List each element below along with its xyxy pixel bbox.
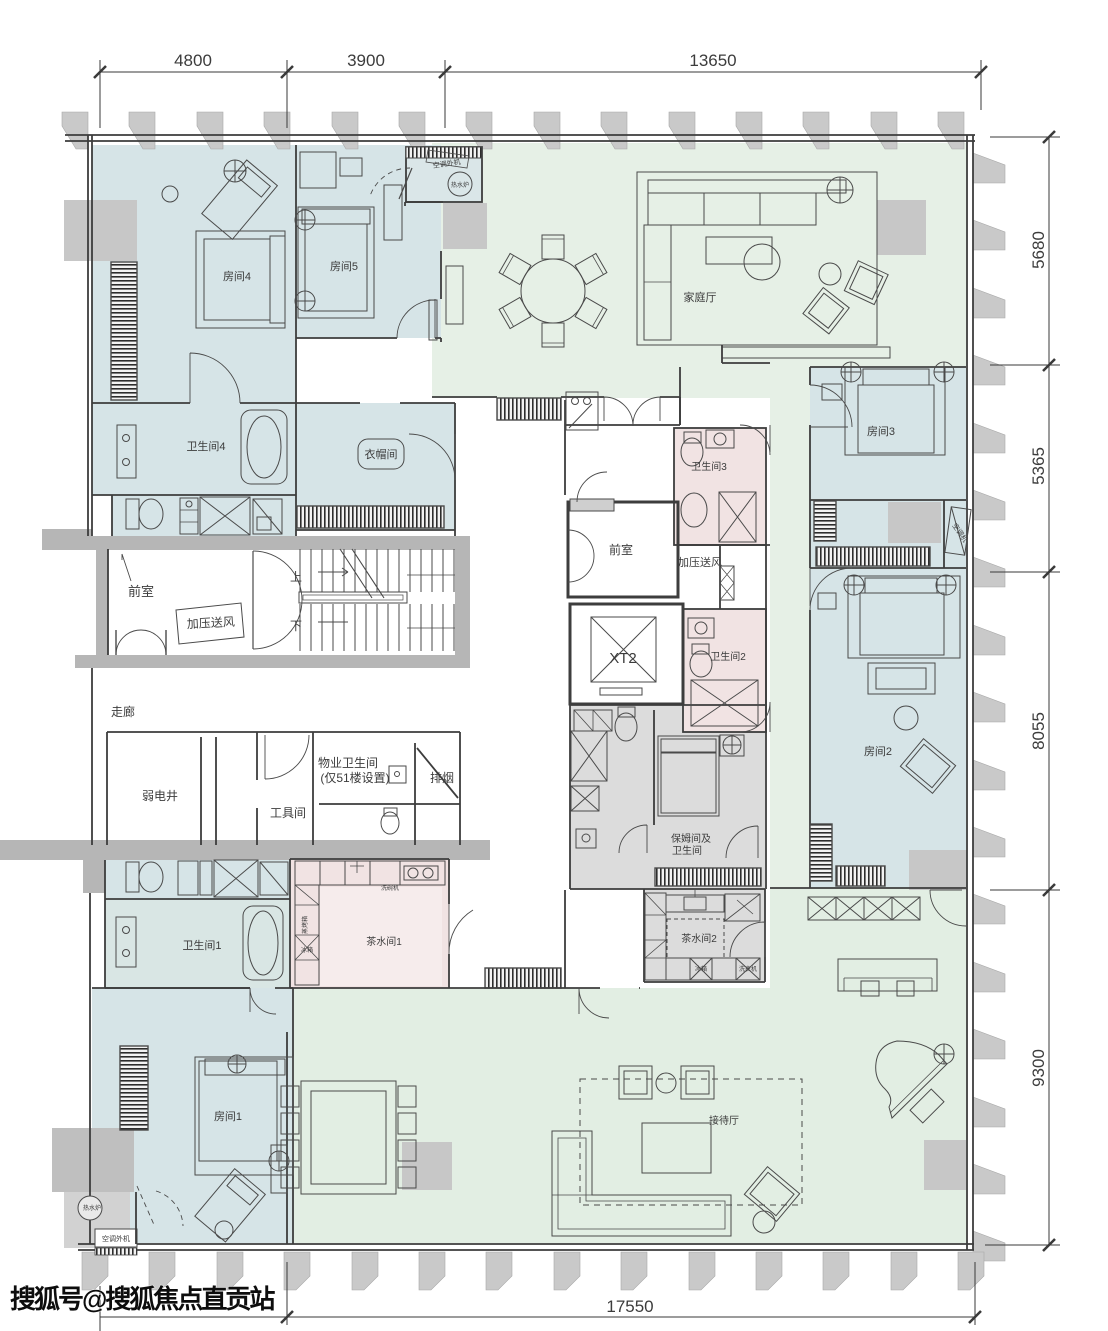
svg-text:13650: 13650 bbox=[689, 51, 736, 70]
svg-text:XT2: XT2 bbox=[609, 650, 637, 667]
svg-text:茶水间2: 茶水间2 bbox=[681, 932, 717, 945]
svg-text:房间3: 房间3 bbox=[867, 425, 895, 438]
svg-text:(仅51楼设置): (仅51楼设置) bbox=[320, 770, 389, 785]
svg-text:接待厅: 接待厅 bbox=[709, 1114, 739, 1127]
svg-text:卫生间: 卫生间 bbox=[672, 844, 702, 857]
svg-text:排烟: 排烟 bbox=[430, 771, 454, 785]
svg-text:走廊: 走廊 bbox=[111, 704, 135, 719]
svg-text:工具间: 工具间 bbox=[270, 806, 306, 820]
svg-text:洗碗机: 洗碗机 bbox=[381, 884, 399, 892]
svg-text:热水炉: 热水炉 bbox=[83, 1204, 101, 1212]
svg-text:房间5: 房间5 bbox=[330, 260, 358, 273]
svg-text:蒸烤箱: 蒸烤箱 bbox=[301, 916, 309, 934]
svg-text:上: 上 bbox=[290, 570, 302, 584]
svg-text:空调外机: 空调外机 bbox=[102, 1234, 130, 1243]
svg-text:加压送风: 加压送风 bbox=[186, 614, 235, 631]
svg-text:房间2: 房间2 bbox=[864, 745, 892, 758]
svg-text:5365: 5365 bbox=[1029, 447, 1048, 485]
svg-text:物业卫生间: 物业卫生间 bbox=[318, 756, 378, 770]
svg-text:9300: 9300 bbox=[1029, 1049, 1048, 1087]
svg-text:3900: 3900 bbox=[347, 51, 385, 70]
svg-text:家庭厅: 家庭厅 bbox=[684, 290, 717, 304]
svg-text:加压送风: 加压送风 bbox=[678, 555, 722, 569]
svg-text:8055: 8055 bbox=[1029, 712, 1048, 750]
svg-text:保姆间及: 保姆间及 bbox=[671, 832, 711, 845]
svg-text:卫生间4: 卫生间4 bbox=[186, 439, 225, 453]
svg-text:前室: 前室 bbox=[128, 584, 154, 599]
svg-text:冰箱: 冰箱 bbox=[301, 946, 313, 954]
svg-text:弱电井: 弱电井 bbox=[142, 789, 178, 803]
svg-text:卫生间1: 卫生间1 bbox=[182, 938, 221, 952]
svg-text:下: 下 bbox=[290, 619, 302, 633]
svg-text:4800: 4800 bbox=[174, 51, 212, 70]
svg-text:热水炉: 热水炉 bbox=[451, 181, 469, 189]
svg-text:衣帽间: 衣帽间 bbox=[365, 447, 398, 461]
svg-text:17550: 17550 bbox=[606, 1297, 653, 1316]
svg-text:前室: 前室 bbox=[609, 542, 633, 557]
svg-text:冰箱: 冰箱 bbox=[695, 965, 707, 973]
svg-text:卫生间3: 卫生间3 bbox=[691, 460, 727, 473]
svg-text:洗衣机: 洗衣机 bbox=[739, 965, 757, 973]
svg-text:房间1: 房间1 bbox=[214, 1110, 242, 1123]
svg-text:搜狐号@搜狐焦点直贡站: 搜狐号@搜狐焦点直贡站 bbox=[10, 1284, 275, 1314]
svg-text:茶水间1: 茶水间1 bbox=[366, 935, 402, 948]
svg-text:5680: 5680 bbox=[1029, 231, 1048, 269]
svg-text:房间4: 房间4 bbox=[223, 270, 251, 283]
svg-text:卫生间2: 卫生间2 bbox=[710, 650, 746, 663]
